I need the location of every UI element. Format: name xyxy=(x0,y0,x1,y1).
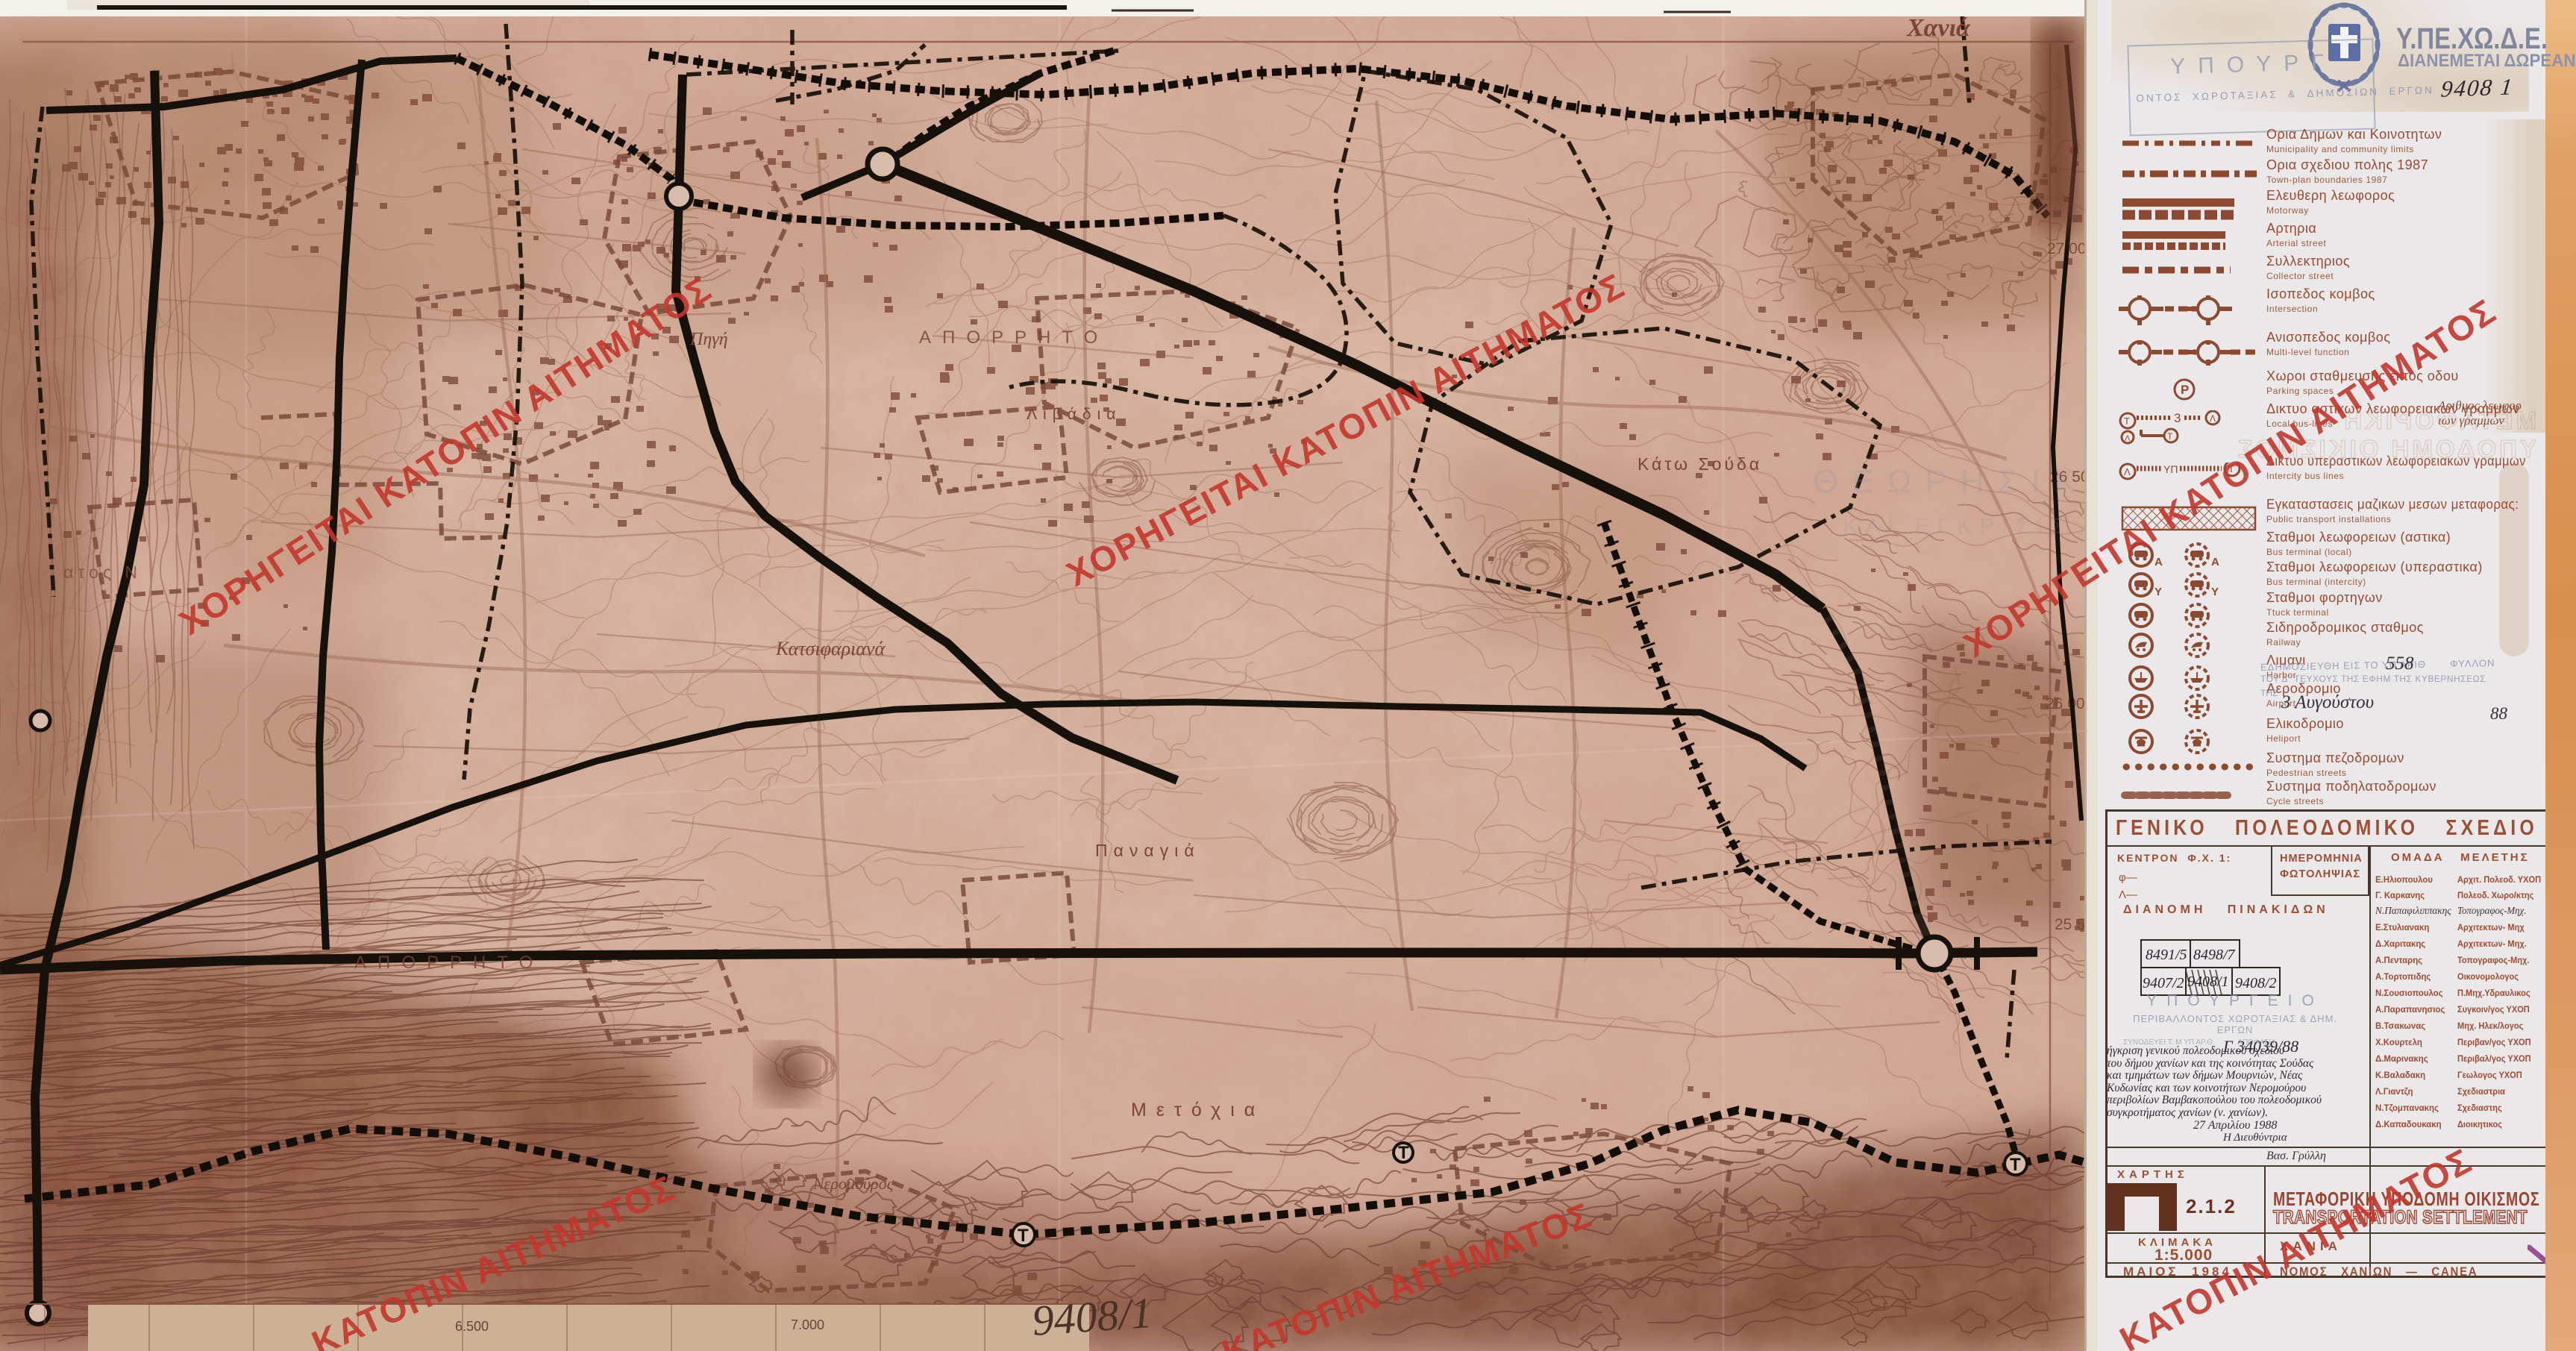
svg-text:T: T xyxy=(1018,1226,1029,1246)
svg-text:Α: Α xyxy=(2154,556,2163,568)
svg-text:Λ: Λ xyxy=(2210,413,2216,424)
svg-text:8498/7: 8498/7 xyxy=(2193,947,2236,963)
svg-text:9408/1: 9408/1 xyxy=(1030,1288,1153,1345)
svg-text:ΑΠΟΡΡΗΤΟ: ΑΠΟΡΡΗΤΟ xyxy=(919,327,1109,348)
svg-text:Υ: Υ xyxy=(2154,586,2162,598)
svg-text:6.500: 6.500 xyxy=(455,1319,489,1334)
svg-text:Παναγιά: Παναγιά xyxy=(1095,841,1200,860)
svg-text:ΥΠ: ΥΠ xyxy=(2163,463,2178,475)
svg-text:P: P xyxy=(2181,383,2189,397)
svg-text:9407/2: 9407/2 xyxy=(2143,975,2184,991)
svg-text:9408/1: 9408/1 xyxy=(2187,974,2229,990)
svg-text:Τ: Τ xyxy=(2124,416,2130,427)
svg-text:Πηγή: Πηγή xyxy=(689,330,728,349)
svg-text:Μετόχια: Μετόχια xyxy=(1131,1100,1265,1120)
svg-text:Νερομούρος: Νερομούρος xyxy=(812,1174,894,1193)
svg-text:Τ: Τ xyxy=(2167,431,2173,442)
svg-text:8491/5: 8491/5 xyxy=(2146,947,2187,963)
svg-text:Λ: Λ xyxy=(2125,434,2131,443)
svg-text:Λιβάδια: Λιβάδια xyxy=(1027,406,1121,423)
svg-text:Κάτω Σούδα: Κάτω Σούδα xyxy=(1638,454,1762,474)
svg-text:7.000: 7.000 xyxy=(791,1317,824,1332)
svg-text:Υ: Υ xyxy=(2211,586,2219,598)
svg-text:9408/2: 9408/2 xyxy=(2235,975,2277,991)
svg-text:Χανιά: Χανιά xyxy=(1906,14,1971,42)
svg-text:3: 3 xyxy=(2174,411,2181,425)
svg-text:Α: Α xyxy=(2211,556,2219,568)
svg-text:ΚΑΙ ΕΓΚΡΙΣΙΣ: ΚΑΙ ΕΓΚΡΙΣΙΣ xyxy=(1843,514,2072,539)
svg-text:T: T xyxy=(1398,1143,1409,1163)
svg-text:Λ: Λ xyxy=(2124,466,2131,477)
svg-text:ΑΠΟΡΡΗΤΟ: ΑΠΟΡΡΗΤΟ xyxy=(354,953,544,973)
svg-text:ατος Ν: ατος Ν xyxy=(63,562,142,582)
svg-text:Κατσιφαριανά: Κατσιφαριανά xyxy=(775,638,886,659)
svg-text:T: T xyxy=(2010,1155,2021,1175)
